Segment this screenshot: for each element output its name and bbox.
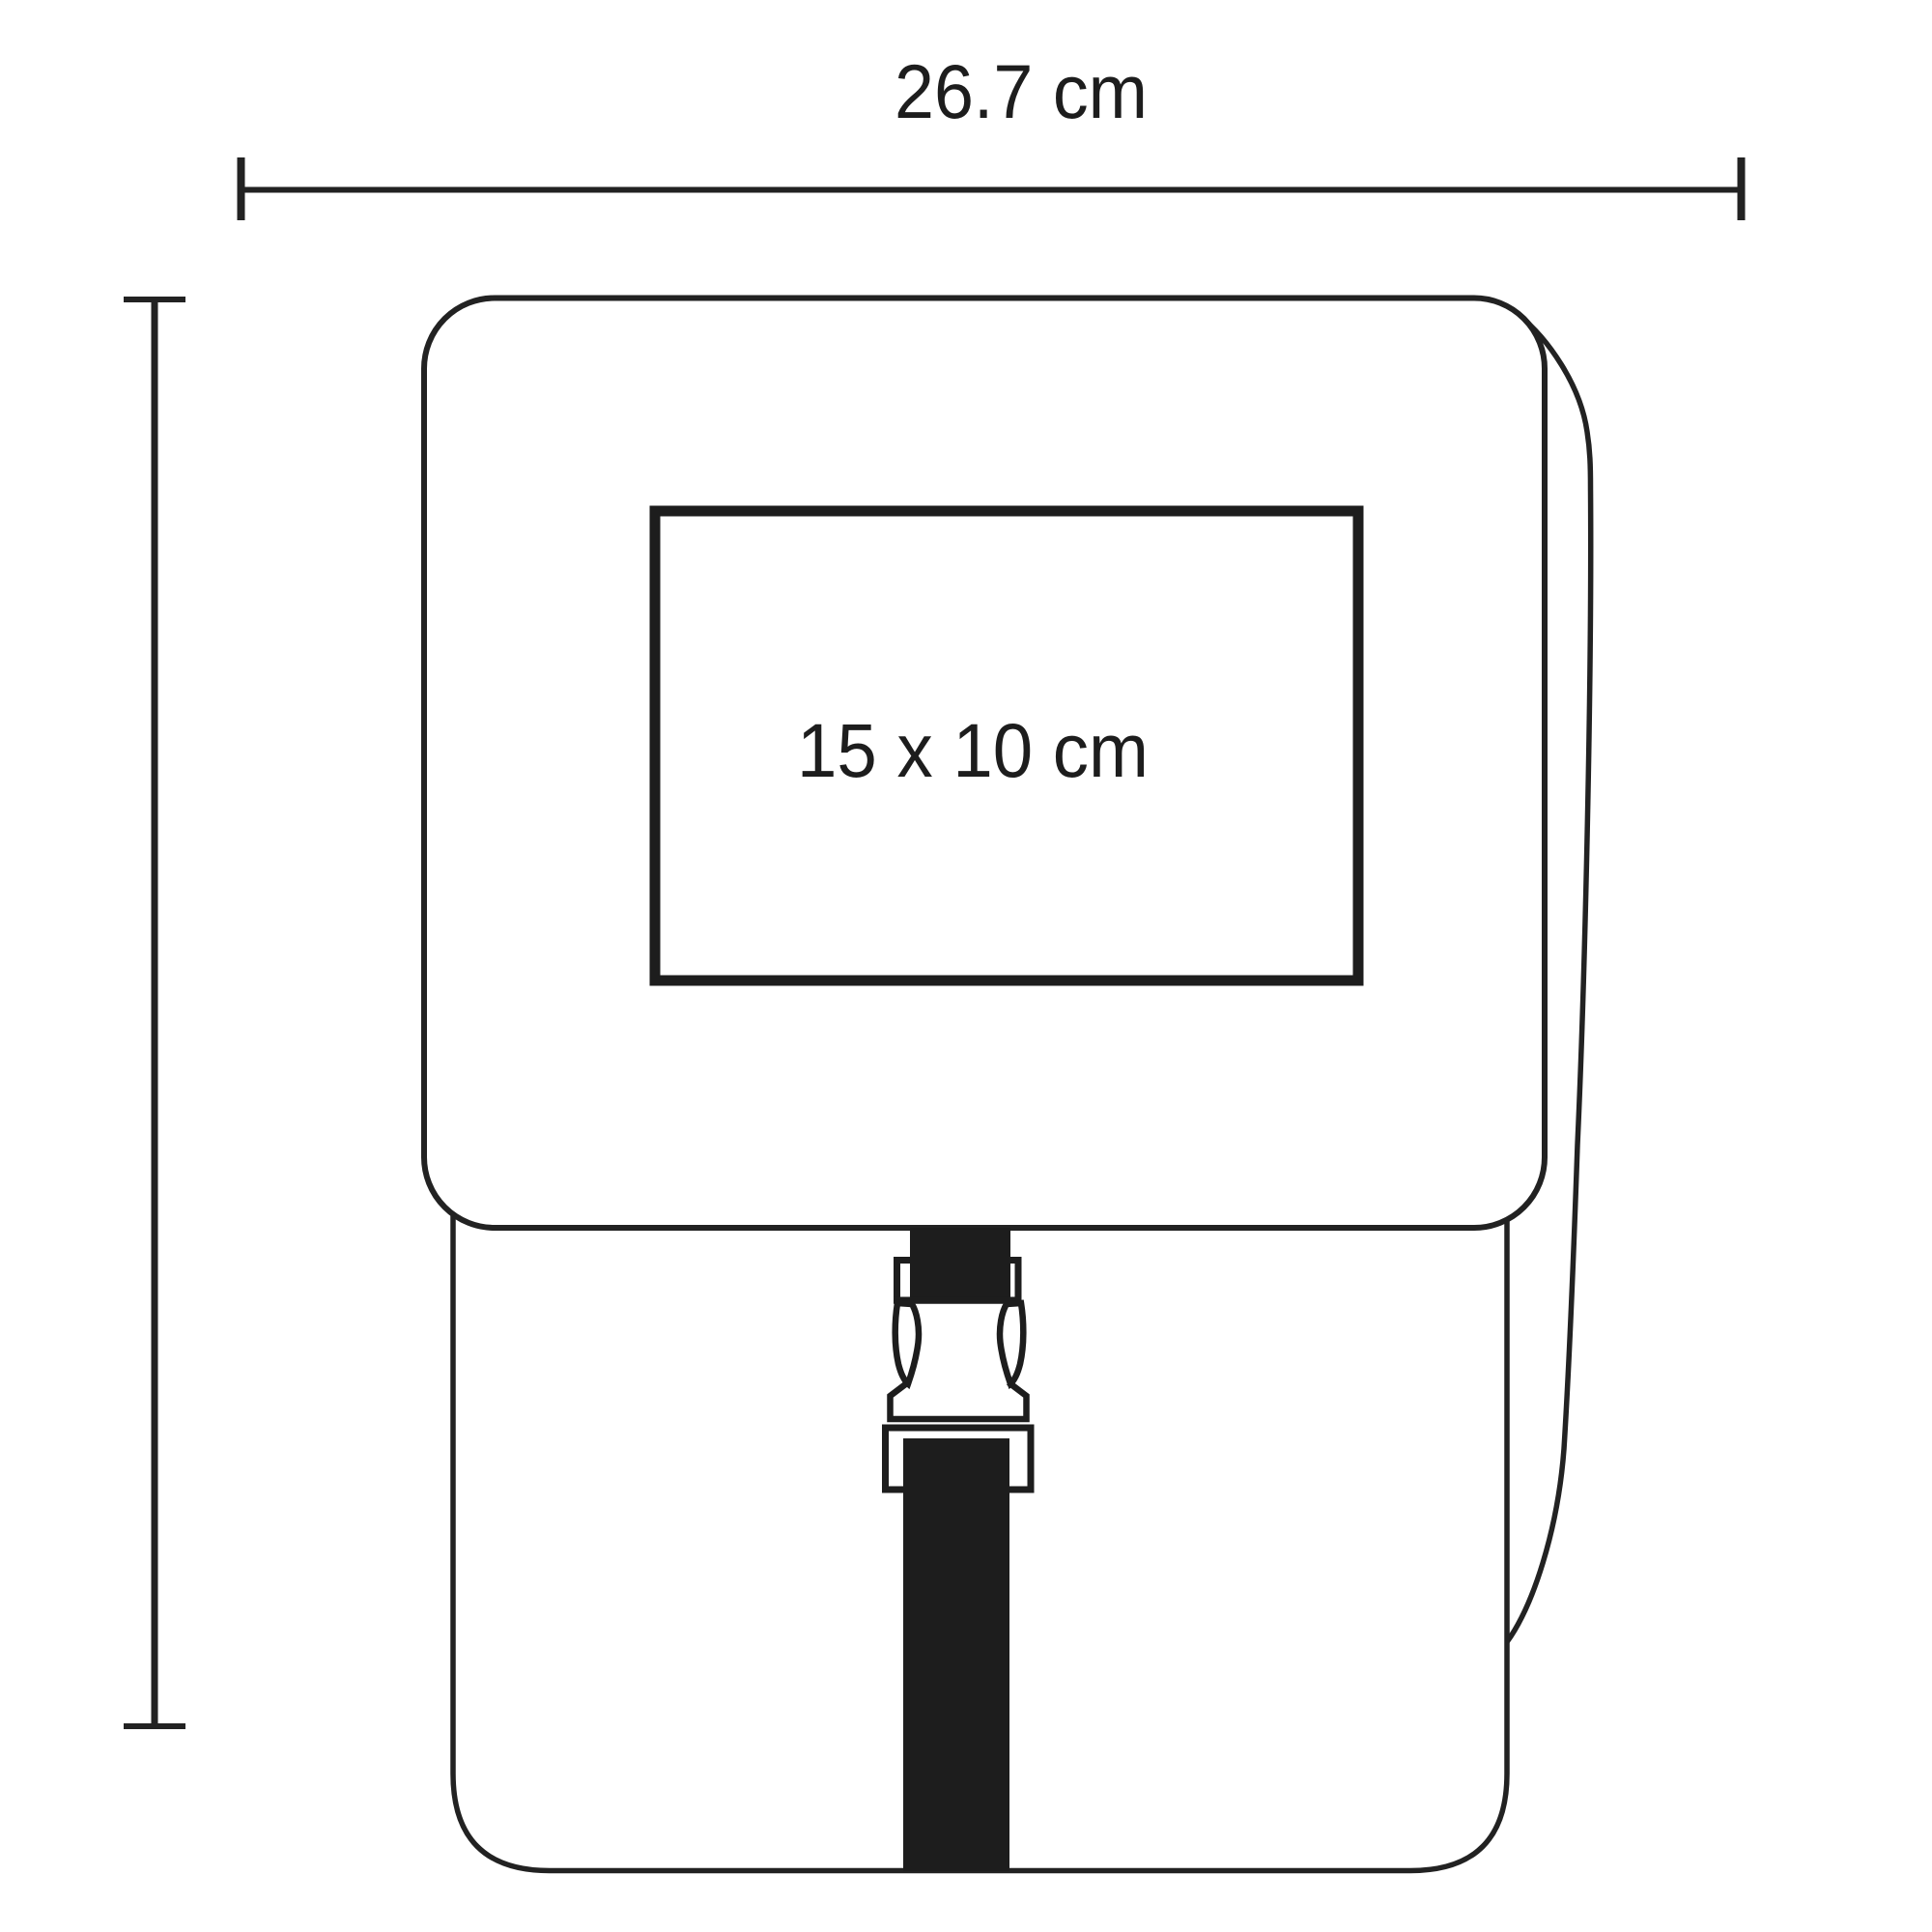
svg-text:26.7 cm: 26.7 cm <box>895 48 1148 134</box>
svg-text:15 x 10 cm: 15 x 10 cm <box>797 707 1149 793</box>
